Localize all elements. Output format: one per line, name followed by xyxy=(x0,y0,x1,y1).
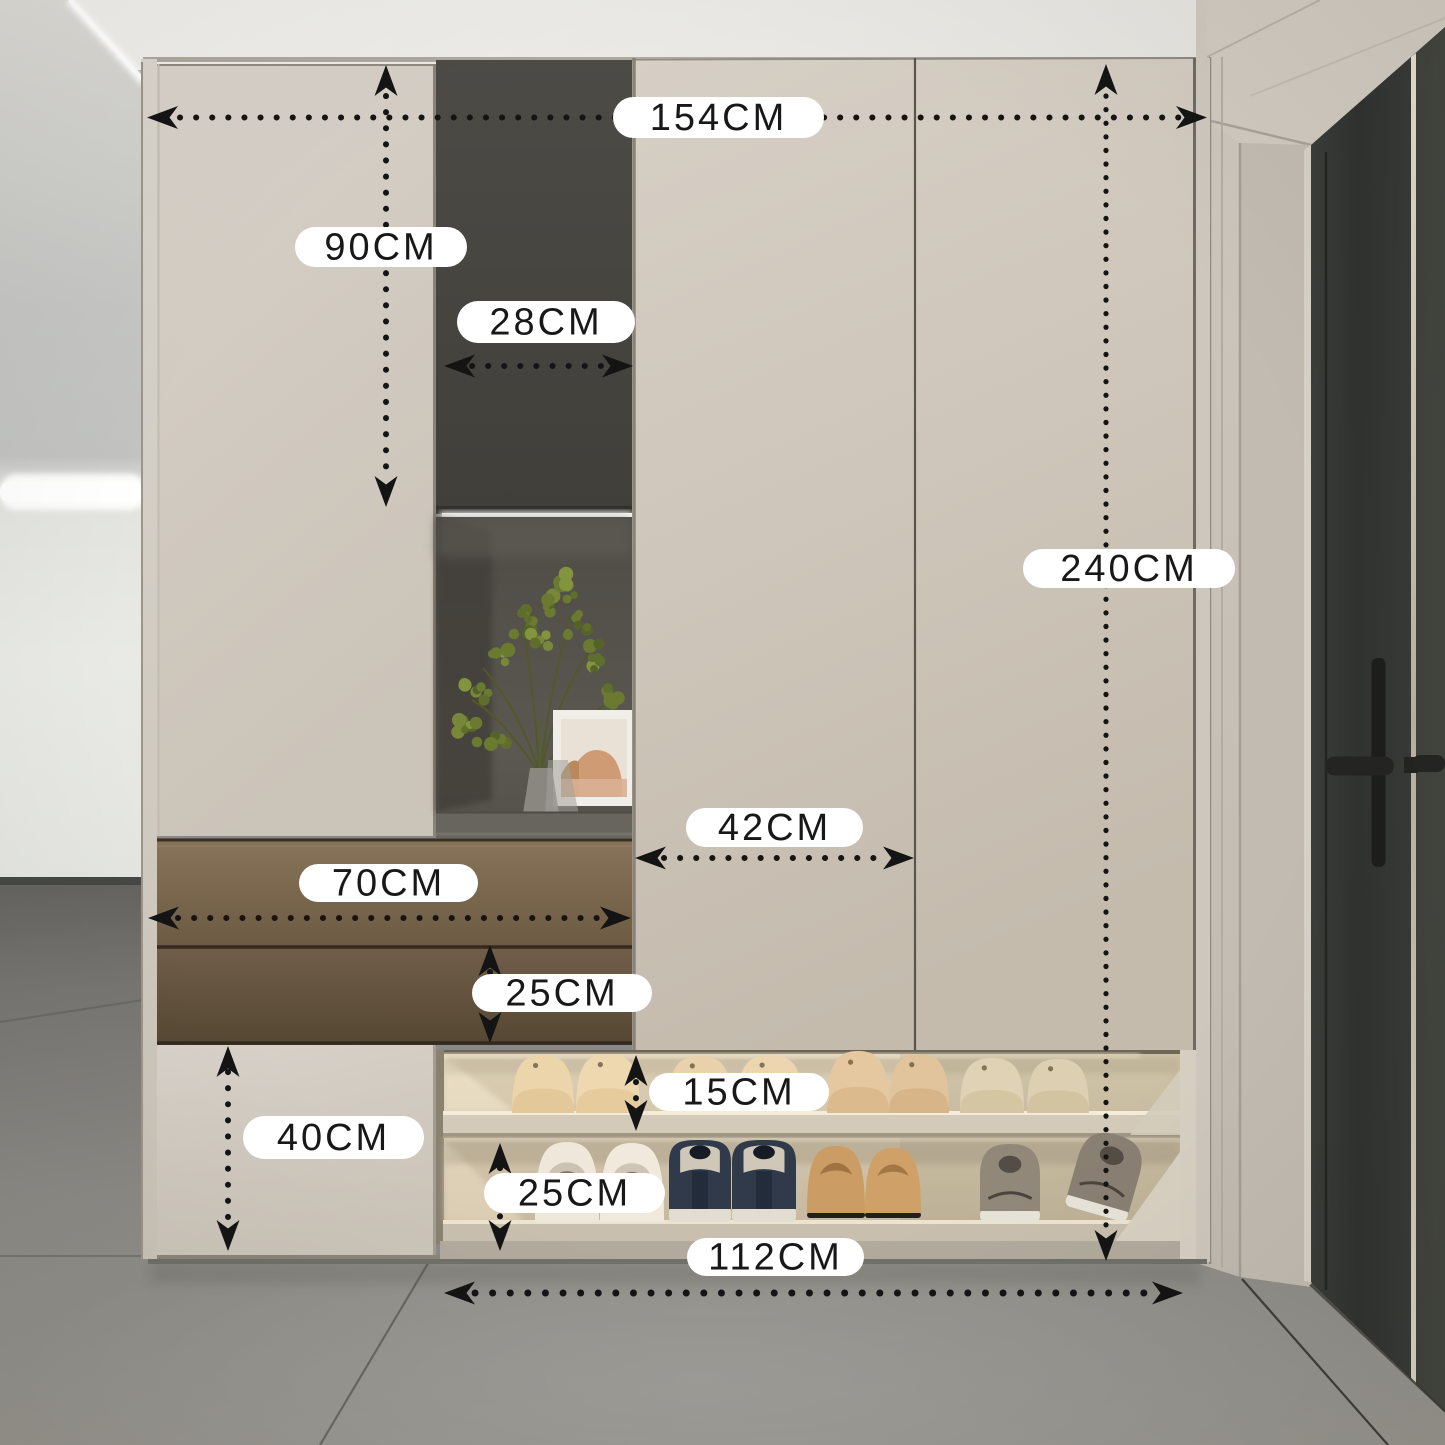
svg-text:240CM: 240CM xyxy=(1060,548,1198,590)
svg-text:42CM: 42CM xyxy=(718,807,831,849)
svg-text:28CM: 28CM xyxy=(489,302,602,344)
svg-text:154CM: 154CM xyxy=(650,97,788,139)
svg-text:15CM: 15CM xyxy=(682,1072,795,1114)
svg-text:70CM: 70CM xyxy=(332,863,445,905)
svg-text:40CM: 40CM xyxy=(277,1117,390,1159)
svg-text:90CM: 90CM xyxy=(324,227,437,269)
svg-text:25CM: 25CM xyxy=(505,973,618,1015)
svg-text:112CM: 112CM xyxy=(708,1237,843,1279)
svg-text:25CM: 25CM xyxy=(518,1173,631,1215)
